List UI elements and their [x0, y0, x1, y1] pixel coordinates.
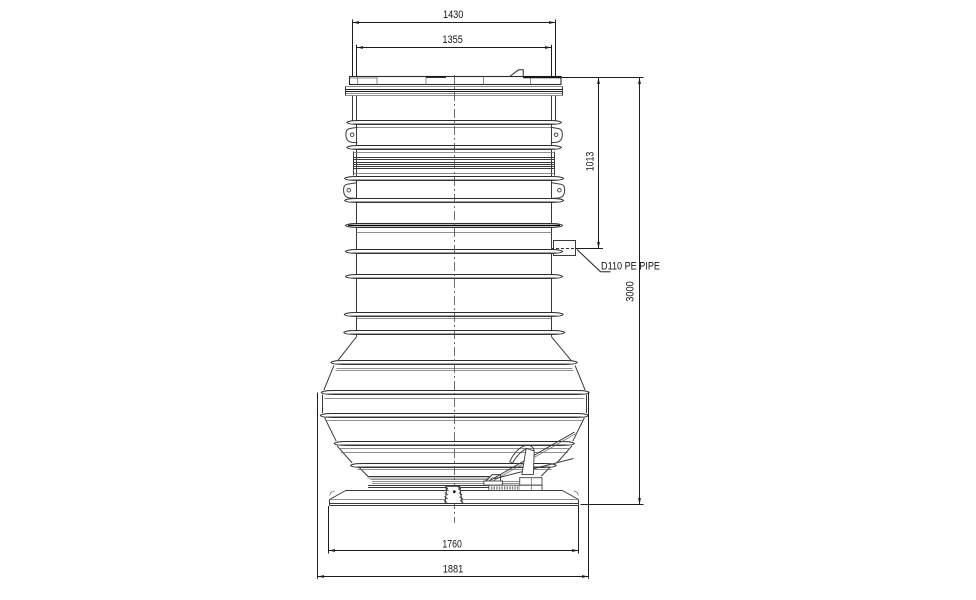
- svg-text:1013: 1013: [585, 152, 597, 172]
- svg-text:3000: 3000: [625, 281, 637, 302]
- svg-text:1355: 1355: [442, 34, 463, 46]
- svg-text:1760: 1760: [442, 539, 462, 551]
- svg-text:1430: 1430: [443, 9, 464, 21]
- svg-text:1881: 1881: [443, 563, 464, 575]
- svg-text:D110 PE PIPE: D110 PE PIPE: [601, 260, 660, 272]
